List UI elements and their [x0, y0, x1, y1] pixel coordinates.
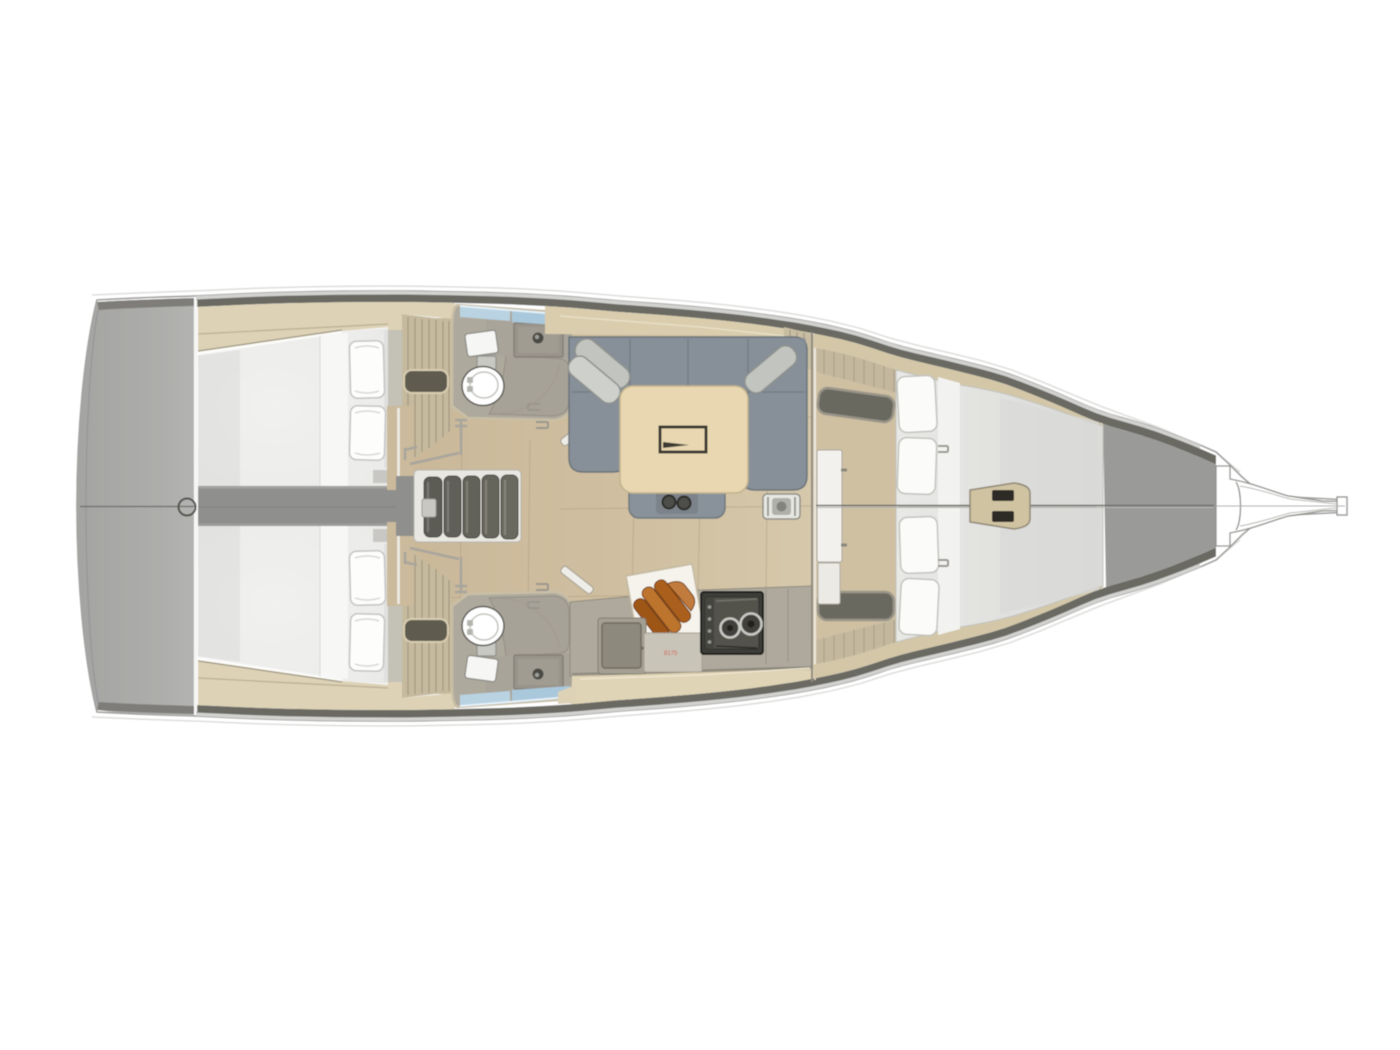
svg-text:8175: 8175 [664, 651, 678, 657]
